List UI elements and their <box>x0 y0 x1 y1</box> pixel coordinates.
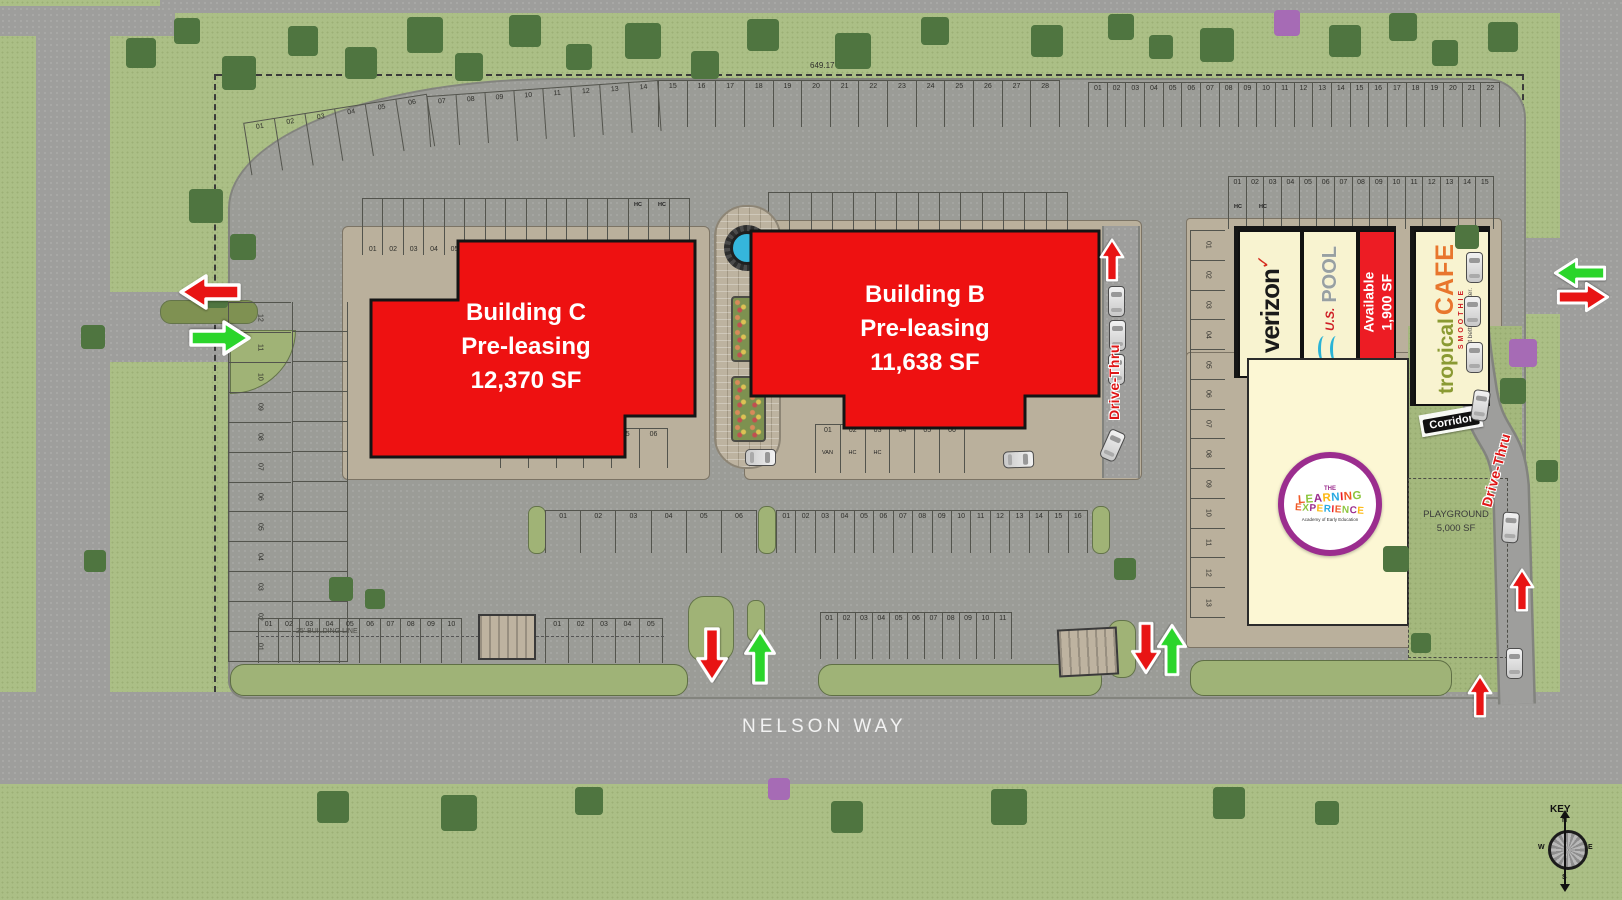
parking-stall: 14 <box>629 81 661 133</box>
parking-stall: 01 <box>776 511 796 553</box>
building-c-status: Pre-leasing <box>461 330 590 364</box>
parking-stall: 12 <box>991 511 1010 553</box>
parking-stall: 09 <box>1239 83 1258 127</box>
parking-stall: 01 <box>545 511 581 553</box>
parking-stall: 15 <box>1049 511 1068 553</box>
parking-stall: 03 <box>866 425 891 473</box>
parking-stall: 13 <box>1313 83 1332 127</box>
hc-marking-4: HC <box>1259 204 1267 211</box>
compass-rose <box>1548 830 1588 870</box>
car <box>1501 511 1520 543</box>
hc-marking-3: HC <box>1234 204 1242 211</box>
parking-stall: 04 <box>229 542 291 572</box>
parking-stall: 11 <box>1191 529 1225 559</box>
parking-row-top-c: 1516171819202122232425262728 <box>658 80 1060 125</box>
right-lane-arrow-2 <box>1466 674 1494 719</box>
parking-stall: 04 <box>320 619 340 663</box>
parking-stall: 05 <box>1164 83 1183 127</box>
property-line-north <box>216 74 1522 76</box>
parking-stall <box>915 450 940 462</box>
parking-stall: 04 <box>652 511 687 553</box>
parking-stall: 19 <box>1425 83 1444 127</box>
parking-stall: 15 <box>1351 83 1370 127</box>
parking-stall: 10 <box>977 613 994 659</box>
parking-stall: 07 <box>1191 410 1225 440</box>
us-pool-name: POOL <box>1319 246 1342 303</box>
parking-stall: 02 <box>279 619 299 663</box>
parking-stall: 23 <box>888 81 917 127</box>
parking-stall: 03 <box>616 511 651 553</box>
compass-needle-north-tip <box>1560 810 1570 818</box>
parking-stall: 26 <box>974 81 1003 127</box>
parking-stall: 15 <box>1476 177 1494 229</box>
road-nelson-way <box>0 692 1622 784</box>
parking-stall: 18 <box>1407 83 1426 127</box>
parking-stall: 03 <box>1264 177 1282 229</box>
tree-canopy-layer <box>0 0 2 2</box>
playground-size: 5,000 SF <box>1406 522 1506 536</box>
le-tagline: Academy of Early Education <box>1302 517 1359 522</box>
parking-stall: 13 <box>1010 511 1029 553</box>
parking-stall: 11 <box>543 87 575 139</box>
parking-stall: 06 <box>874 511 893 553</box>
west-exit-arrow <box>178 272 242 312</box>
parking-stall: 09 <box>933 511 952 553</box>
parking-stall <box>940 450 965 462</box>
parking-stall: 04 <box>873 613 890 659</box>
parking-stall: 09 <box>485 91 517 143</box>
parking-stall: 03 <box>300 619 320 663</box>
parking-stall: 09 <box>229 393 291 423</box>
building-b-status: Pre-leasing <box>860 312 989 346</box>
parking-stall: HC <box>865 450 890 462</box>
dumpster-enclosure-2 <box>1057 626 1119 677</box>
tropical-cafe-word: CAFE <box>1431 243 1460 315</box>
building-b-name: Building B <box>865 278 985 312</box>
parking-stall: 02 <box>569 619 592 663</box>
learning-experience-logo: THE LEARNING EXPERIENCE Academy of Early… <box>1278 452 1382 556</box>
parking-stall: 20 <box>1444 83 1463 127</box>
parking-stall: 08 <box>1191 439 1225 469</box>
parking-stall: 05 <box>890 613 907 659</box>
parking-stall: 13 <box>600 83 632 135</box>
car <box>1003 450 1035 468</box>
main-exit-arrow <box>694 626 730 684</box>
parking-stall: 07 <box>427 95 460 147</box>
parking-stall: 01 <box>1228 177 1247 229</box>
parking-stall: 04 <box>835 511 854 553</box>
parking-stall: 08 <box>913 511 932 553</box>
parking-stall: 10 <box>952 511 971 553</box>
building-c-area: 12,370 SF <box>471 364 582 398</box>
parking-stall: 14 <box>1459 177 1477 229</box>
parking-stall: 07 <box>229 453 291 483</box>
parking-stall: 05 <box>229 512 291 542</box>
parking-stall: 13 <box>1441 177 1459 229</box>
parking-stall: 11 <box>995 613 1012 659</box>
parking-stall: 24 <box>917 81 946 127</box>
south-verge-3 <box>1190 660 1452 696</box>
parking-stall: 05 <box>1300 177 1318 229</box>
le-experience: EXPERIENCE <box>1295 502 1365 517</box>
verizon-check-icon: ✓ <box>1254 255 1273 269</box>
parking-stall: 06 <box>1191 380 1225 410</box>
parking-stall: 11 <box>971 511 990 553</box>
parking-stall: 05 <box>687 511 722 553</box>
northeast-exit-arrow <box>1556 280 1610 314</box>
parking-stall: 04 <box>1145 83 1164 127</box>
parking-stall: 04 <box>1191 320 1225 350</box>
parking-stall: 11 <box>1276 83 1295 127</box>
parking-stall <box>890 450 915 462</box>
parking-stall: 13 <box>1191 588 1225 618</box>
parking-stall: 04 <box>890 425 915 473</box>
hc-marking-1: HC <box>634 202 642 209</box>
car <box>1466 342 1483 373</box>
parking-stall: 12 <box>1423 177 1441 229</box>
parking-stall: 01 <box>1088 83 1108 127</box>
parking-col-west-2 <box>292 302 348 662</box>
parking-stall: 14 <box>1030 511 1049 553</box>
parking-stall: 19 <box>774 81 803 127</box>
parking-stall: 06 <box>908 613 925 659</box>
parking-stall: 07 <box>894 511 913 553</box>
parking-stall: 06 <box>722 511 757 553</box>
compass-e: E <box>1588 844 1593 851</box>
parking-stall: 22 <box>1481 83 1500 127</box>
parking-stall: 02 <box>1191 261 1225 291</box>
parking-stall: 07 <box>1201 83 1220 127</box>
car <box>1506 648 1523 679</box>
boundary-dimension: 649.17' <box>810 61 836 70</box>
hc-marking-2: HC <box>658 202 666 209</box>
car <box>745 449 776 466</box>
parking-stall: 10 <box>1388 177 1406 229</box>
building-b-label: Building B Pre-leasing 11,638 SF <box>772 276 1078 382</box>
flowering-tree-layer <box>0 0 2 2</box>
unit-available: Available 1,900 SF <box>1358 230 1396 374</box>
parking-stall: 04 <box>1282 177 1300 229</box>
parking-row-center-east: 01020304050607080910111213141516 <box>776 510 1088 551</box>
parking-stall: 02 <box>581 511 616 553</box>
property-line-west <box>214 74 216 692</box>
parking-stall: 03 <box>856 613 873 659</box>
parking-stall: 27 <box>1003 81 1032 127</box>
parking-stall: 11 <box>1406 177 1424 229</box>
parking-stall: 05 <box>855 511 874 553</box>
building-b-area: 11,638 SF <box>870 346 979 380</box>
road-left <box>36 6 110 784</box>
parking-stall: 04 <box>616 619 639 663</box>
parking-stall: 16 <box>1069 511 1088 553</box>
parking-stall: 22 <box>859 81 888 127</box>
parking-stall: 05 <box>915 425 940 473</box>
parking-stall: 03 <box>229 572 291 602</box>
parking-stall: 02 <box>796 511 815 553</box>
parking-stall: 12 <box>1191 558 1225 588</box>
parking-stall: 01 <box>1191 230 1225 261</box>
parking-stall: 17 <box>1388 83 1407 127</box>
parking-stall: 25 <box>945 81 974 127</box>
compass-key: KEY N W E S <box>1528 804 1602 896</box>
parking-stall: 05 <box>1191 350 1225 380</box>
parking-stall: 21 <box>831 81 860 127</box>
parking-stall: HC <box>840 450 865 462</box>
parking-stall: 02 <box>838 613 855 659</box>
parking-stall: 09 <box>1191 469 1225 499</box>
parking-stall: 08 <box>1220 83 1239 127</box>
island-1 <box>528 506 546 554</box>
drive-thru-label-b: Drive-Thru <box>1106 332 1122 432</box>
parking-stall: 09 <box>1370 177 1388 229</box>
available-label: Available <box>1359 272 1377 333</box>
parking-stall: 03 <box>1126 83 1145 127</box>
west-entry-arrow <box>188 318 252 358</box>
parking-stall: 06 <box>360 619 380 663</box>
available-sign: Available 1,900 SF <box>1359 272 1395 333</box>
parking-stall: 03 <box>1191 291 1225 321</box>
parking-stall: 08 <box>229 423 291 453</box>
compass-w: W <box>1538 844 1545 851</box>
available-area: 1,900 SF <box>1377 272 1395 333</box>
compass-needle-south-tip <box>1560 884 1570 892</box>
drive-thru-b-arrow <box>1098 238 1126 283</box>
road-top-band <box>160 0 1622 13</box>
parking-row-bottom-c: 0102030405060708091011 <box>820 612 1012 657</box>
parking-stall: 03 <box>816 511 835 553</box>
car <box>1466 252 1483 283</box>
parking-stall: 12 <box>572 85 604 137</box>
car <box>1108 286 1125 317</box>
parking-stall: 10 <box>514 89 546 141</box>
parking-stall: 01 <box>820 613 838 659</box>
verizon-wordmark: verizon <box>1255 269 1285 353</box>
street-name: NELSON WAY <box>742 716 907 738</box>
parking-stall: 06 <box>229 483 291 513</box>
parking-stall: 08 <box>456 93 488 145</box>
us-pool-sign: U.S. POOL <box>1318 246 1342 362</box>
parking-stall: 09 <box>421 619 441 663</box>
building-c-name: Building C <box>466 296 586 330</box>
building-c-label: Building C Pre-leasing 12,370 SF <box>378 294 674 400</box>
car <box>1464 296 1481 327</box>
parking-row-front-b-sub: VANHCHC <box>815 450 965 462</box>
main-entry-arrow <box>742 628 778 686</box>
parking-stall: 10 <box>442 619 462 663</box>
parking-stall: 17 <box>716 81 745 127</box>
parking-row-bottom-a: 01020304050607080910 <box>258 618 462 661</box>
parking-stall: 08 <box>401 619 421 663</box>
parking-stall: 07 <box>925 613 942 659</box>
parking-stall: 01 <box>545 619 569 663</box>
us-pool-prefix: U.S. <box>1323 308 1337 331</box>
parking-stall: 10 <box>1257 83 1276 127</box>
verizon-sign: verizon✓ <box>1254 255 1286 353</box>
parking-stall: 05 <box>640 619 663 663</box>
parking-stall: 03 <box>593 619 616 663</box>
parking-row-top-right: 0102030405060708091011121314151617181920… <box>1088 82 1500 125</box>
parking-stall: 21 <box>1463 83 1482 127</box>
parking-stall: VAN <box>815 450 840 462</box>
parking-stall: 15 <box>658 81 688 127</box>
parking-stall: 10 <box>1191 499 1225 529</box>
parking-col-strip-side: 01020304050607080910111213 <box>1190 230 1225 618</box>
tenant-us-pool: U.S. POOL <box>1302 230 1358 378</box>
dumpster-enclosure-1 <box>478 614 536 660</box>
parking-stall: 14 <box>1332 83 1351 127</box>
building-line-label: 25' BUILDING LINE <box>296 628 358 635</box>
parking-stall: 06 <box>940 425 965 473</box>
parking-stall: 05 <box>340 619 360 663</box>
parking-stall: 08 <box>1353 177 1371 229</box>
parking-stall: 09 <box>960 613 977 659</box>
parking-row-center-west: 010203040506 <box>545 510 757 551</box>
parking-stall: 16 <box>1369 83 1388 127</box>
island-2 <box>758 506 776 554</box>
parking-stall: 20 <box>802 81 831 127</box>
parking-stall: 16 <box>688 81 717 127</box>
parking-stall: 08 <box>943 613 960 659</box>
parking-stall: 18 <box>745 81 774 127</box>
parking-stall: 02 <box>1247 177 1265 229</box>
parking-stall: 28 <box>1031 81 1060 127</box>
parking-stall: 06 <box>1182 83 1201 127</box>
parking-stall: 01 <box>258 619 279 663</box>
tenant-verizon: verizon✓ <box>1238 230 1302 378</box>
road-right <box>1560 6 1622 696</box>
east-entry-arrow <box>1155 623 1189 677</box>
right-lane-arrow-1 <box>1508 568 1536 613</box>
parking-stall: 07 <box>1335 177 1353 229</box>
parking-stall: 02 <box>1108 83 1127 127</box>
parking-stall: 10 <box>229 363 291 393</box>
parking-stall: 02 <box>841 425 866 473</box>
tropical-word: tropical <box>1435 318 1459 394</box>
site-plan: 649.17' N 89°26'09" E 010203040506 07080… <box>0 0 1622 900</box>
parking-stall: 06 <box>1317 177 1335 229</box>
parking-row-strip-front: 010203040506070809101112131415 <box>1228 176 1494 227</box>
parking-stall: 01 <box>815 425 841 473</box>
parking-stall: 07 <box>381 619 401 663</box>
south-verge-1 <box>230 664 688 696</box>
island-3 <box>1092 506 1110 554</box>
building-line <box>256 636 664 637</box>
parking-stall: 12 <box>1295 83 1314 127</box>
compass-needle <box>1564 816 1566 884</box>
parking-row-bottom-b: 0102030405 <box>545 618 663 661</box>
